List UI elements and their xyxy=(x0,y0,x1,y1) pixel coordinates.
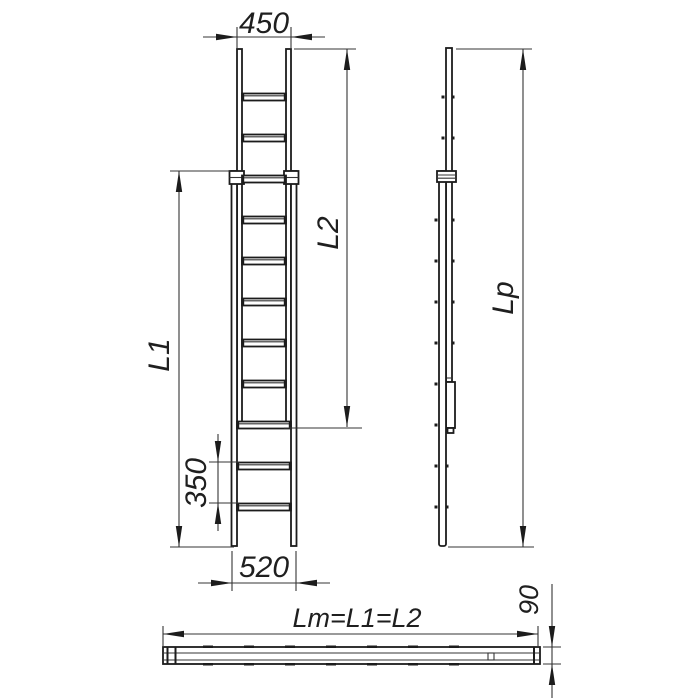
rung-4 xyxy=(242,217,286,224)
rung-body xyxy=(242,381,286,388)
front-outer-left-rail xyxy=(232,171,238,546)
rung-weld-dot xyxy=(435,301,438,304)
arrowhead xyxy=(176,526,182,547)
rung-weld-dot xyxy=(452,96,455,99)
rung-right-end xyxy=(284,135,286,142)
rung-7 xyxy=(242,340,286,347)
rung-weld-dot xyxy=(446,506,449,509)
rung-body xyxy=(242,94,286,101)
rung-left-end xyxy=(237,422,239,429)
plan-rung-dash-top xyxy=(285,646,295,649)
side-top-bracket xyxy=(437,171,456,182)
rung-9 xyxy=(237,422,291,429)
plan-view-ladder xyxy=(163,646,540,666)
rung-left-end xyxy=(242,299,244,306)
rung-body xyxy=(237,504,291,511)
rung-body xyxy=(242,217,286,224)
front-outer-right-rail xyxy=(291,171,297,546)
side-bracket-foot xyxy=(448,428,454,433)
arrowhead xyxy=(549,626,555,647)
rung-body xyxy=(242,135,286,142)
rung-6 xyxy=(242,299,286,306)
rung-left-end xyxy=(242,381,244,388)
rung-left-end xyxy=(242,217,244,224)
rung-weld-dot xyxy=(442,137,445,140)
rung-weld-dot xyxy=(435,506,438,509)
technical-drawing-canvas: 450 L2 L1 350 520 Lp Lm=L1=L2 xyxy=(0,0,700,700)
dimension-arrowheads xyxy=(163,34,555,685)
rung-weld-dot xyxy=(435,260,438,263)
rung-body xyxy=(242,258,286,265)
rung-weld-dot xyxy=(452,301,455,304)
rung-weld-dot xyxy=(435,342,438,345)
rung-left-end xyxy=(242,258,244,265)
rung-weld-dot xyxy=(452,260,455,263)
rung-weld-dot xyxy=(435,383,438,386)
rung-right-end xyxy=(284,258,286,265)
rung-right-end xyxy=(284,94,286,101)
arrowhead xyxy=(517,631,538,637)
plan-rung-dash-bottom xyxy=(326,663,336,666)
arrowhead xyxy=(176,171,182,192)
side-outer-rail xyxy=(439,171,446,546)
arrowhead xyxy=(344,406,350,427)
dim-label-350: 350 xyxy=(180,458,213,508)
rung-weld-dot xyxy=(435,219,438,222)
dim-label-L1: L1 xyxy=(143,338,176,371)
rung-5 xyxy=(242,258,286,265)
arrowhead xyxy=(296,580,317,586)
rung-body xyxy=(242,299,286,306)
plan-rung-dash-bottom xyxy=(408,663,418,666)
rung-left-end xyxy=(242,94,244,101)
rung-left-end xyxy=(237,463,239,470)
rung-right-end xyxy=(284,176,286,183)
rung-weld-dot xyxy=(442,96,445,99)
plan-rung-dash-bottom xyxy=(285,663,295,666)
rung-right-end xyxy=(289,463,291,470)
rung-right-end xyxy=(284,340,286,347)
plan-rung-dash-top xyxy=(244,646,254,649)
plan-rung-dash-bottom xyxy=(244,663,254,666)
rung-body xyxy=(242,340,286,347)
rung-8 xyxy=(242,381,286,388)
plan-rung-dash-top xyxy=(408,646,418,649)
rung-body xyxy=(237,422,291,429)
rung-right-end xyxy=(284,299,286,306)
plan-rung-dash-bottom xyxy=(203,663,213,666)
rung-weld-dot xyxy=(446,465,449,468)
rung-weld-dot xyxy=(452,219,455,222)
arrowhead xyxy=(520,526,526,547)
rung-11 xyxy=(237,504,291,511)
rung-right-end xyxy=(284,381,286,388)
arrowhead xyxy=(211,580,232,586)
rung-3 xyxy=(242,176,286,183)
plan-body xyxy=(163,647,540,664)
dim-label-Lm: Lm=L1=L2 xyxy=(292,603,421,633)
rung-right-end xyxy=(284,217,286,224)
extension-ladder-drawing: 450 L2 L1 350 520 Lp Lm=L1=L2 xyxy=(0,0,700,700)
rung-left-end xyxy=(237,504,239,511)
rung-2 xyxy=(242,135,286,142)
plan-rung-dash-top xyxy=(449,646,459,649)
rung-body xyxy=(242,176,286,183)
rung-1 xyxy=(242,94,286,101)
arrowhead xyxy=(520,49,526,70)
rung-right-end xyxy=(289,504,291,511)
front-rungs xyxy=(237,94,291,511)
arrowhead xyxy=(216,34,237,40)
plan-rung-dash-top xyxy=(367,646,377,649)
rung-left-end xyxy=(242,135,244,142)
arrowhead xyxy=(344,49,350,70)
plan-rung-dash-bottom xyxy=(367,663,377,666)
dim-label-L2: L2 xyxy=(312,216,345,250)
dimension-450: 450 xyxy=(203,7,325,48)
rung-10 xyxy=(237,463,291,470)
front-view-ladder xyxy=(230,49,299,546)
side-lower-bracket xyxy=(446,382,455,428)
dim-label-450: 450 xyxy=(239,7,289,40)
dim-label-Lp: Lp xyxy=(487,281,520,314)
plan-rung-dash-top xyxy=(203,646,213,649)
plan-rung-dash-bottom xyxy=(449,663,459,666)
side-view-ladder xyxy=(435,48,457,546)
dimension-Lm: Lm=L1=L2 xyxy=(163,603,538,647)
rung-left-end xyxy=(242,176,244,183)
dim-label-520: 520 xyxy=(239,551,289,584)
dimension-Lp: Lp xyxy=(448,49,534,547)
plan-rung-dash-top xyxy=(326,646,336,649)
rung-weld-dot xyxy=(435,424,438,427)
arrowhead xyxy=(163,631,184,637)
rung-body xyxy=(237,463,291,470)
arrowhead xyxy=(215,441,221,462)
arrowhead xyxy=(549,664,555,685)
rung-weld-dot xyxy=(452,342,455,345)
arrowhead xyxy=(291,34,312,40)
rung-left-end xyxy=(242,340,244,347)
dim-label-90: 90 xyxy=(514,585,544,615)
rung-weld-dot xyxy=(452,137,455,140)
rung-weld-dot xyxy=(435,465,438,468)
arrowhead xyxy=(215,503,221,524)
